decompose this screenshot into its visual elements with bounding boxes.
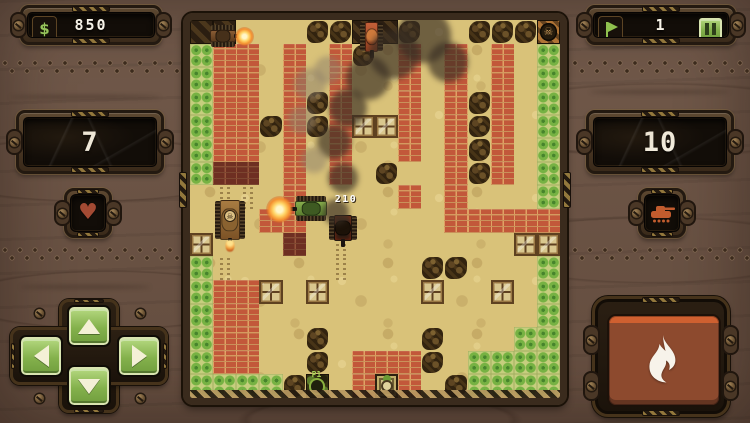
battlefield-sprites: 210 P1 [190, 20, 560, 398]
arrow-left-icon [34, 345, 49, 367]
screw-icon [161, 138, 170, 147]
field-hazard-strip [190, 390, 560, 398]
screw-icon [35, 394, 44, 403]
hazard-notch [563, 172, 571, 208]
screw-icon [580, 21, 589, 30]
panel-ear [157, 129, 174, 155]
enemies-panel: 10 [586, 110, 734, 174]
hazard-notch [642, 6, 680, 12]
panel-ear [105, 200, 122, 226]
wood-streak [10, 95, 160, 99]
hazard-notch [642, 410, 680, 416]
hazard-notch [179, 172, 187, 208]
lives-panel: 7 [16, 110, 164, 174]
hazard-notch [72, 6, 110, 12]
stage-panel: 1 [586, 5, 736, 45]
damage-popup: 210 [326, 194, 366, 205]
screw-icon [587, 382, 596, 391]
hazard-notch [641, 111, 679, 117]
smoke-puff [314, 56, 342, 84]
battlefield: 210 P1 [183, 13, 567, 405]
panel-ear [54, 200, 71, 226]
smoke-puff [288, 106, 316, 134]
screw-icon [733, 21, 742, 30]
flame-icon [641, 334, 687, 388]
hazard-notch [71, 111, 109, 117]
heart-icon: ♥ [78, 202, 98, 224]
tank-icon [648, 202, 676, 224]
panel-ear [155, 12, 172, 38]
panel-ear [576, 12, 593, 38]
panel-ear [722, 371, 739, 401]
enemy-tank-skull [215, 200, 245, 240]
screw-icon [136, 309, 145, 318]
screw-icon [632, 209, 641, 218]
dpad-left-button[interactable] [19, 335, 63, 377]
skull-icon [224, 210, 236, 222]
pause-button[interactable] [697, 16, 724, 38]
panel-ear [729, 12, 746, 38]
smoke-puff [301, 147, 327, 173]
exhaust-flame [226, 240, 235, 252]
fire-button[interactable] [607, 314, 721, 407]
fire-button-frame [592, 296, 730, 417]
arrow-down-icon [78, 379, 100, 394]
panel-ear [727, 129, 744, 155]
dpad-right-button[interactable] [117, 335, 161, 377]
hazard-notch [71, 167, 109, 173]
panel-ear [722, 325, 739, 355]
game-screen: $ 850 1 7 ♥ [0, 0, 750, 423]
panel-ear [628, 200, 645, 226]
money-value: 850 [28, 16, 154, 34]
screw-icon [159, 21, 168, 30]
smoke-puff [328, 163, 358, 193]
panel-ear [583, 371, 600, 401]
hazard-notch [74, 299, 104, 303]
enemies-emblem [638, 188, 686, 238]
screw-icon [726, 336, 735, 345]
muzzle-flash [266, 196, 293, 223]
lives-value: 7 [81, 127, 98, 158]
screw-icon [587, 336, 596, 345]
screw-icon [35, 309, 44, 318]
battlefield-viewport: 210 P1 [190, 20, 560, 398]
screw-icon [731, 138, 740, 147]
arrow-up-icon [78, 319, 100, 334]
screw-icon [58, 209, 67, 218]
panel-ear [679, 200, 696, 226]
hazard-notch [641, 167, 679, 173]
lives-screen: 7 [23, 117, 157, 167]
hazard-notch [642, 297, 680, 303]
player-tank [295, 196, 327, 221]
money-screen: $ 850 [27, 12, 155, 38]
hazard-notch [651, 189, 673, 194]
screw-icon [683, 209, 692, 218]
pause-icon [705, 23, 716, 35]
enemies-value: 10 [643, 127, 678, 158]
panel-ear [576, 129, 593, 155]
arrow-right-icon [132, 345, 147, 367]
screw-icon [109, 209, 118, 218]
heart-screen: ♥ [70, 194, 106, 232]
enemies-screen: 10 [593, 117, 727, 167]
panel-ear [6, 129, 23, 155]
dpad-down-button[interactable] [67, 365, 111, 407]
muzzle-flash [235, 27, 254, 46]
hazard-notch [651, 232, 673, 237]
hazard-notch [642, 38, 680, 44]
hazard-notch [163, 343, 167, 369]
smoke-puff [428, 42, 468, 82]
screw-icon [726, 382, 735, 391]
lives-emblem: ♥ [64, 188, 112, 238]
hazard-notch [77, 232, 99, 237]
screw-icon [14, 21, 23, 30]
wood-streak [590, 90, 730, 94]
screw-icon [136, 394, 145, 403]
money-panel: $ 850 [20, 5, 162, 45]
screw-icon [580, 138, 589, 147]
hazard-notch [77, 189, 99, 194]
panel-ear [10, 12, 27, 38]
dpad [10, 299, 168, 413]
tank-screen [644, 194, 680, 232]
dpad-up-button[interactable] [67, 305, 111, 347]
hazard-notch [11, 343, 15, 369]
hazard-notch [74, 409, 104, 413]
hazard-notch [72, 38, 110, 44]
screw-icon [10, 138, 19, 147]
enemy-tank-1 [210, 25, 236, 47]
stage-screen: 1 [593, 12, 729, 38]
wood-streak [20, 285, 150, 289]
panel-ear [583, 325, 600, 355]
